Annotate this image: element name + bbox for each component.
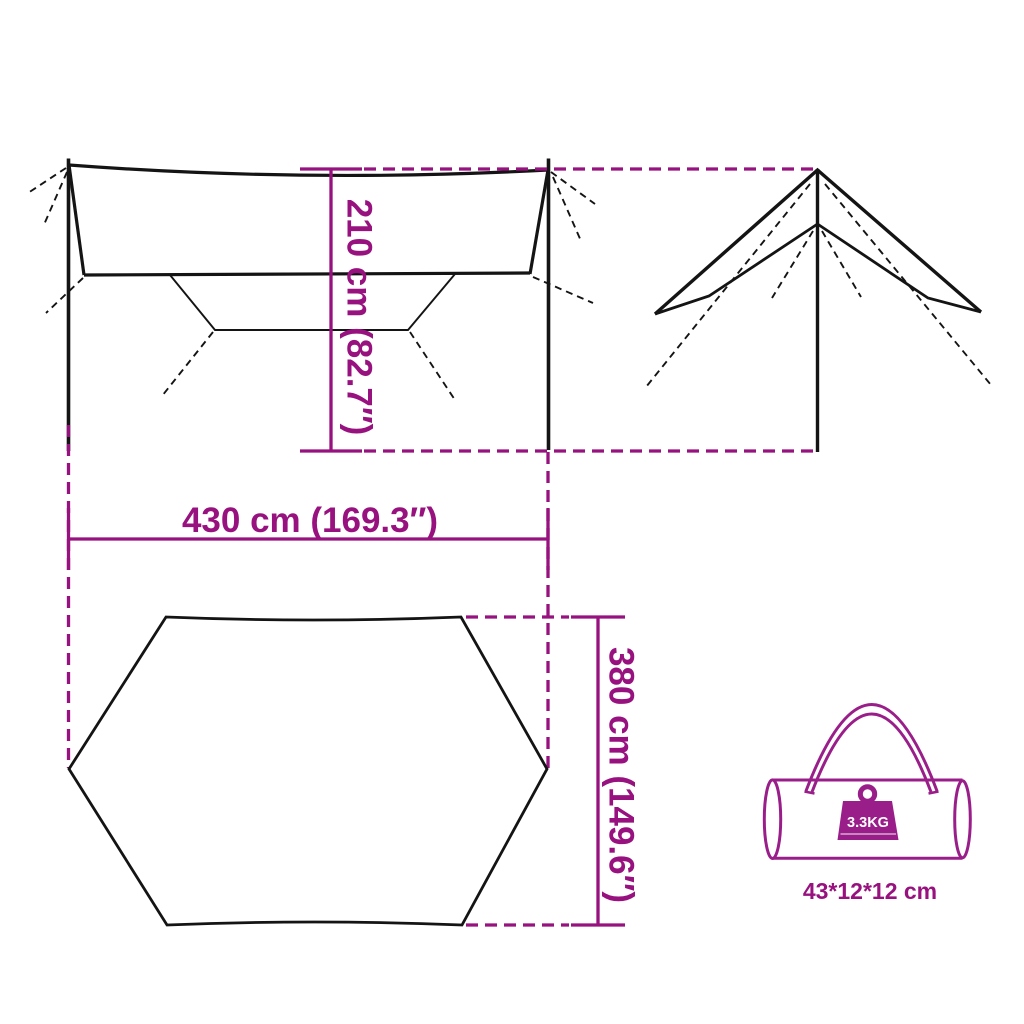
svg-text:380 cm (149.6″): 380 cm (149.6″) — [602, 647, 641, 903]
svg-text:3.3KG: 3.3KG — [847, 815, 889, 831]
svg-text:430 cm (169.3″): 430 cm (169.3″) — [182, 501, 438, 540]
svg-text:210 cm (82.7″): 210 cm (82.7″) — [340, 199, 379, 436]
svg-text:43*12*12 cm: 43*12*12 cm — [803, 878, 937, 904]
